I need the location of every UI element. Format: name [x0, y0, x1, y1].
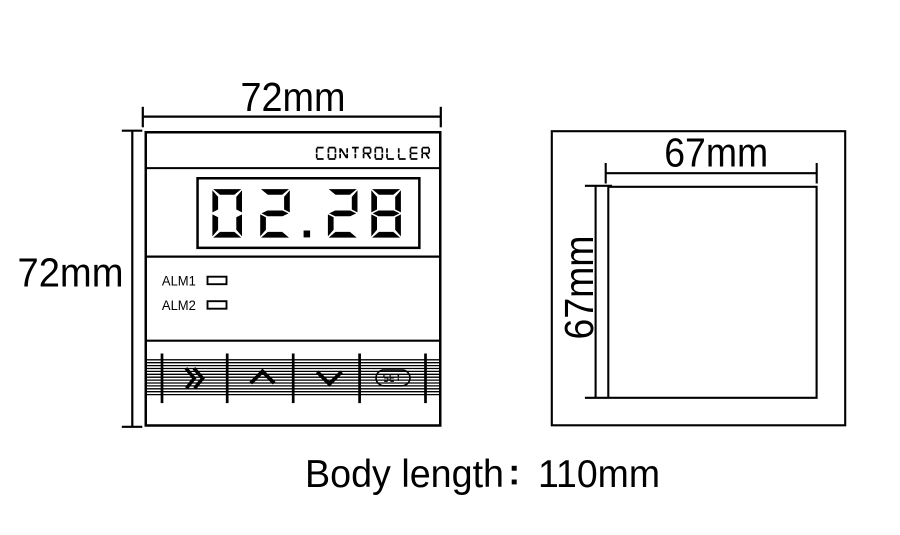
svg-text:110mm: 110mm	[538, 453, 660, 496]
svg-text:ALM2: ALM2	[162, 297, 196, 313]
svg-text:Body length: Body length	[305, 453, 504, 496]
svg-text:72mm: 72mm	[241, 74, 346, 120]
svg-text:72mm: 72mm	[18, 249, 124, 295]
svg-text:ALM1: ALM1	[162, 272, 196, 288]
svg-text:67mm: 67mm	[664, 129, 768, 175]
svg-text:67mm: 67mm	[556, 236, 602, 340]
